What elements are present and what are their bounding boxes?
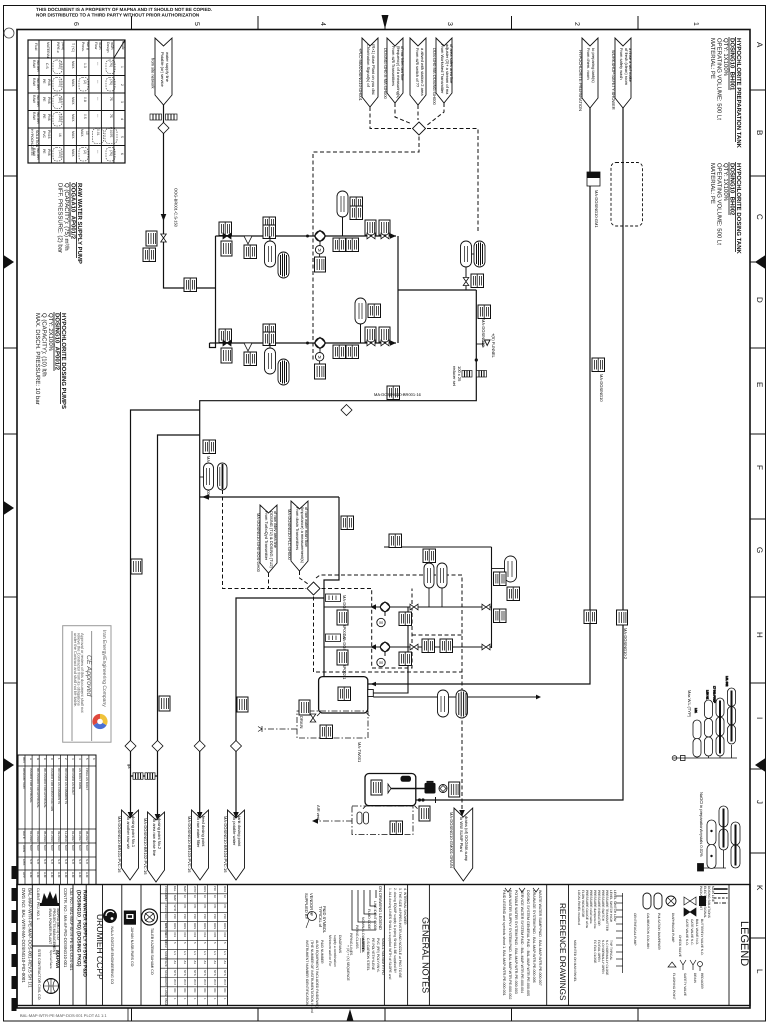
svg-text:6: 6 xyxy=(72,22,79,26)
svg-text:WATER: WATER xyxy=(36,112,40,124)
svg-text:M.R: M.R xyxy=(43,845,47,851)
svg-text:Press.: Press. xyxy=(81,42,85,52)
svg-text:CHK: CHK xyxy=(22,859,26,865)
svg-text:HYPOCHLORITE DOSING TANK: HYPOCHLORITE DOSING TANK xyxy=(735,163,742,255)
svg-text:+(X) FUNNEL: +(X) FUNNEL xyxy=(491,333,496,359)
svg-text:QTY: 2X100%: QTY: 2X100% xyxy=(47,313,54,352)
svg-text:PVC (PR) POLYVINYL: PVC (PR) POLYVINYL xyxy=(376,938,380,973)
svg-text:RAW: RAW xyxy=(32,78,36,87)
svg-text:UNIT: UNIT xyxy=(164,895,168,902)
svg-text:FINAL AS BUILT: FINAL AS BUILT xyxy=(85,768,89,790)
svg-text:DRAIN: DRAIN xyxy=(299,716,304,729)
svg-text:N.C NORMALLY CLOSE: N.C NORMALLY CLOSE xyxy=(605,940,609,975)
svg-text:GENERAL NOTES: GENERAL NOTES xyxy=(421,917,431,993)
svg-text:RE-ISSUED FOR APPROVAL: RE-ISSUED FOR APPROVAL xyxy=(36,768,40,808)
svg-text:IRAN POWER PLANT: IRAN POWER PLANT xyxy=(48,909,52,946)
svg-text:MAPNA (MD-1) CO: MAPNA (MD-1) CO xyxy=(56,909,60,940)
svg-text:PN16: PN16 xyxy=(47,130,51,139)
svg-text:5: 5 xyxy=(120,136,124,138)
svg-text:LEVEL SWITCH LOW: LEVEL SWITCH LOW xyxy=(613,890,617,921)
svg-text:REVISED AS COMMENTS: REVISED AS COMMENTS xyxy=(64,768,68,804)
svg-text:11.2016: 11.2016 xyxy=(64,831,68,842)
svg-text:CLIENT PRJ. NO. 1: CLIENT PRJ. NO. 1 xyxy=(36,888,40,920)
svg-text:2017: 2017 xyxy=(213,979,217,986)
svg-text:01.2016: 01.2016 xyxy=(29,831,33,842)
svg-text:LANG: LANG xyxy=(164,989,168,997)
svg-text:03.2017: 03.2017 xyxy=(78,831,82,842)
svg-text:PROJECTS MANAGEMENT: PROJECTS MANAGEMENT xyxy=(52,909,56,956)
svg-text:---: --- xyxy=(96,97,100,100)
svg-text:75: 75 xyxy=(109,114,113,118)
svg-text:ABBREV.: ABBREV. xyxy=(361,938,365,953)
svg-text:MAP: MAP xyxy=(183,886,187,892)
svg-text:MAX.: MAX. xyxy=(71,61,75,69)
svg-text:MATERIAL: PE: MATERIAL: PE xyxy=(709,163,716,204)
svg-text:---: --- xyxy=(96,80,100,83)
svg-text:Design: Design xyxy=(106,42,110,53)
svg-text:002: 002 xyxy=(183,933,187,938)
svg-text:WATER: WATER xyxy=(36,148,40,160)
svg-text:S.H: S.H xyxy=(50,859,54,864)
svg-text:URUMIEH CCPP: URUMIEH CCPP xyxy=(95,914,105,980)
svg-text:ON DRAWING LEGEND: ON DRAWING LEGEND xyxy=(378,886,383,930)
svg-text:under the Contract and shall n: under the Contract and shall not be liab… xyxy=(73,633,78,707)
svg-text:SCALE: SCALE xyxy=(164,970,168,979)
svg-text:A.M: A.M xyxy=(71,872,75,878)
svg-text:(150): (150) xyxy=(58,114,62,122)
svg-text:PE: PE xyxy=(193,905,197,909)
svg-text:Q (CAPACITY): (10) lt/h: Q (CAPACITY): (10) lt/h xyxy=(41,313,48,377)
svg-text:DIAPHRAGM PUMP: DIAPHRAGM PUMP xyxy=(671,913,675,942)
svg-text:PRESSURE relief valve: PRESSURE relief valve xyxy=(589,890,593,924)
svg-text:(mm): (mm) xyxy=(61,42,65,50)
svg-text:drains (of) OOGMA sump: drains (of) OOGMA sump xyxy=(464,816,469,862)
svg-text:HYPOCHLORITE-PREPARATION: HYPOCHLORITE-PREPARATION xyxy=(578,50,583,111)
svg-text:S.H: S.H xyxy=(29,859,33,864)
svg-text:S.H: S.H xyxy=(64,859,68,864)
svg-text:M.R: M.R xyxy=(71,845,75,851)
svg-text:TALEB KAZEMI SAHAMI CO: TALEB KAZEMI SAHAMI CO xyxy=(150,928,154,975)
svg-text:S.H: S.H xyxy=(57,859,61,864)
svg-text:dosing point No.2: dosing point No.2 xyxy=(157,818,162,850)
svg-text:Flow: Flow xyxy=(94,42,98,50)
svg-text:PRESSURE SWITCH: PRESSURE SWITCH xyxy=(601,890,605,922)
svg-text:4. INTERNAL SHOWER: 4. INTERNAL SHOWER xyxy=(403,888,407,925)
svg-text:Iran Energy/Engineering Compan: Iran Energy/Engineering Company xyxy=(101,630,107,707)
svg-text:RAW: RAW xyxy=(32,95,36,104)
svg-text:1/1: 1/1 xyxy=(173,951,177,955)
svg-text:NaOCl in preparation/crystals: NaOCl in preparation/crystals 0.01% xyxy=(699,792,704,857)
svg-text:PN6: PN6 xyxy=(47,97,51,104)
svg-text:LSH 01: LSH 01 xyxy=(706,690,710,700)
svg-text:MA-DOSING10-BR103-PVC-16: MA-DOSING10-BR103-PVC-16 xyxy=(187,816,192,873)
svg-text:P&ID SYMBOL: P&ID SYMBOL xyxy=(322,906,327,934)
svg-text:FLUID CODE: FLUID CODE xyxy=(367,909,371,930)
svg-text:07.2016: 07.2016 xyxy=(50,831,54,842)
svg-text:T (°C): T (°C) xyxy=(71,43,75,52)
svg-text:GATE VALVE N.C.: GATE VALVE N.C. xyxy=(690,919,694,946)
svg-text:TYP TYPICAL: TYP TYPICAL xyxy=(609,940,613,960)
svg-text:ISSUED FOR CONSTRUCTION: ISSUED FOR CONSTRUCTION xyxy=(50,768,54,811)
svg-text:APP: APP xyxy=(22,872,26,878)
svg-text:BAL-MAP-WTR-PE-MAP-DOS-001-REV: BAL-MAP-WTR-PE-MAP-DOS-001-REV.5 SH 1/1 xyxy=(28,888,33,988)
svg-text:5: 5 xyxy=(193,22,200,26)
svg-text:of raw i/dev area line: of raw i/dev area line xyxy=(273,511,278,549)
svg-text:SERVICE WATER SYSTEM P&ID - BA: SERVICE WATER SYSTEM P&ID - BAL-MAP-WTR-… xyxy=(520,890,524,993)
svg-text:DATE: DATE xyxy=(22,831,26,839)
svg-text:SAFETY VALVE: SAFETY VALVE xyxy=(683,973,687,996)
svg-text:MAPNA: MAPNA xyxy=(54,950,60,969)
svg-text:EN: EN xyxy=(203,989,207,993)
svg-text:75: 75 xyxy=(109,97,113,101)
svg-text:SUPPLIED BY: SUPPLIED BY xyxy=(304,893,309,920)
svg-text:NTS: NTS xyxy=(193,970,197,976)
svg-text:16: 16 xyxy=(58,133,62,137)
svg-text:of ma. inlet raw line: of ma. inlet raw line xyxy=(400,46,405,81)
svg-text:DIAGRAMS: DIAGRAMS xyxy=(338,935,342,954)
svg-text:PID: PID xyxy=(213,914,217,919)
svg-text:WTR: WTR xyxy=(193,886,197,892)
svg-text:DESCRIPTION: DESCRIPTION xyxy=(22,768,26,789)
svg-text:A: A xyxy=(755,42,764,48)
svg-text:2017: 2017 xyxy=(183,979,187,986)
svg-text:QTY: 1X100%: QTY: 1X100% xyxy=(722,163,729,202)
svg-text:0.5: 0.5 xyxy=(83,114,87,119)
svg-text:Chlorination Signal(s) of: Chlorination Signal(s) of xyxy=(366,44,371,88)
svg-text:LS1: LS1 xyxy=(694,708,698,713)
svg-text:2. dosing EQUIP supply & pipin: 2. dosing EQUIP supply & piping SHALL BE… xyxy=(393,888,397,974)
svg-text:m3/h: m3/h xyxy=(98,42,102,50)
svg-text:1.3: 1.3 xyxy=(83,63,87,68)
svg-text:to preparing tank(s): to preparing tank(s) xyxy=(591,48,596,83)
svg-text:MA-DOSING10: MA-DOSING10 xyxy=(481,319,486,347)
svg-text:004: 004 xyxy=(203,933,207,938)
svg-text:DOS: DOS xyxy=(183,923,187,929)
svg-text:1/1: 1/1 xyxy=(203,951,207,955)
svg-text:To area raw dose line: To area raw dose line xyxy=(152,818,157,857)
svg-text:---: --- xyxy=(96,114,100,117)
svg-text:Special Saze: Special Saze xyxy=(49,950,53,969)
svg-text:2017: 2017 xyxy=(193,979,197,986)
svg-text:MA-TW001: MA-TW001 xyxy=(357,742,362,763)
svg-text:C&I. NO.: BAL-MAP-WTR-PE-001-D: C&I. NO.: BAL-MAP-WTR-PE-001-DOS-001 xyxy=(69,888,74,971)
svg-text:of raw water main flow: of raw water main flow xyxy=(304,507,309,547)
svg-text:---: --- xyxy=(96,150,100,153)
svg-text:MATERIAL: MATERIAL xyxy=(46,42,50,59)
svg-text:reducer set: reducer set xyxy=(452,366,457,387)
svg-text:A.M: A.M xyxy=(64,872,68,878)
svg-text:MA-DOSING10-GM1: MA-DOSING10-GM1 xyxy=(594,190,599,228)
svg-text:1/1: 1/1 xyxy=(183,951,187,955)
svg-text:of area sales area line: of area sales area line xyxy=(449,44,454,84)
svg-text:M.R: M.R xyxy=(50,845,54,851)
svg-text:10: 10 xyxy=(183,895,187,899)
svg-text:DRAIN: DRAIN xyxy=(693,973,697,984)
svg-text:MAP: MAP xyxy=(173,895,177,901)
svg-text:From dosin Transmitters: From dosin Transmitters xyxy=(295,507,300,550)
svg-text:SIZE: SIZE xyxy=(164,961,168,967)
svg-text:A.M: A.M xyxy=(57,872,61,878)
svg-text:L: L xyxy=(755,969,764,974)
svg-text:MAX.: MAX. xyxy=(71,149,75,157)
svg-text:ga: ga xyxy=(127,764,132,769)
svg-text:To potable water: To potable water xyxy=(232,816,237,846)
svg-text:(100): (100) xyxy=(58,79,62,87)
svg-text:m3/h: m3/h xyxy=(110,42,114,50)
svg-text:MA-DOSING10-BR104-PVC-16: MA-DOSING10-BR104-PVC-16 xyxy=(223,816,228,873)
svg-text:from site network: from site network xyxy=(151,58,156,88)
svg-text:tank dosing point: tank dosing point xyxy=(237,816,242,847)
svg-text:1/1: 1/1 xyxy=(223,951,227,955)
svg-text:LEGEND: LEGEND xyxy=(738,921,750,966)
svg-text:1/1: 1/1 xyxy=(193,951,197,955)
svg-text:BUTTERFLY VALVE N.O.: BUTTERFLY VALVE N.O. xyxy=(700,919,704,956)
svg-text:A.M: A.M xyxy=(50,872,54,878)
svg-text:RE-ISSUED FOR APPROVAL: RE-ISSUED FOR APPROVAL xyxy=(43,768,47,808)
svg-text:RAW: RAW xyxy=(32,60,36,69)
svg-text:DOS: DOS xyxy=(223,923,227,929)
svg-text:DOSING SYSTEM GENERAL P&ID - B: DOSING SYSTEM GENERAL P&ID - BAL-MAP-WTR… xyxy=(526,890,530,996)
svg-text:BAL: BAL xyxy=(173,886,177,892)
svg-text:HYPOCHLORITE PREPARATION TANK: HYPOCHLORITE PREPARATION TANK xyxy=(735,38,742,149)
svg-text:4: 4 xyxy=(120,118,124,120)
svg-text:EN: EN xyxy=(173,989,177,993)
svg-text:1: 1 xyxy=(120,66,124,68)
svg-text:C: C xyxy=(755,214,764,220)
svg-text:S.H: S.H xyxy=(43,859,47,864)
svg-text:DOS: DOS xyxy=(203,886,207,892)
svg-text:4: 4 xyxy=(319,22,326,26)
svg-text:J: J xyxy=(755,800,764,804)
svg-text:2: 2 xyxy=(573,22,580,26)
svg-text:From st/6 switch of ??: From st/6 switch of ?? xyxy=(415,48,420,88)
svg-text:NTS: NTS xyxy=(203,970,207,976)
svg-text:(DOSING10_PID) (DOSING PKG): (DOSING10_PID) (DOSING PKG) xyxy=(76,890,82,967)
svg-text:DOS-GH0-MA-DOSING-GH000: DOS-GH0-MA-DOSING-GH000 xyxy=(432,48,437,105)
svg-text:S.H: S.H xyxy=(78,859,82,864)
svg-text:I: I xyxy=(755,717,764,719)
svg-text:OOGAA10_AP001/2: OOGAA10_AP001/2 xyxy=(70,183,77,240)
svg-text:A: A xyxy=(29,758,33,760)
svg-text:dosing point No.1: dosing point No.1 xyxy=(131,816,136,848)
svg-text:MATERIAL: PE: MATERIAL: PE xyxy=(709,38,716,79)
svg-text:1. ALL dosing LINES SHALL a su: 1. ALL dosing LINES SHALL a supplied WIT… xyxy=(388,888,392,979)
svg-text:NTS: NTS xyxy=(173,970,177,976)
svg-text:MA-DOSING10-GM001-DRAIN: MA-DOSING10-GM001-DRAIN xyxy=(449,812,454,868)
svg-text:OPERATING VOLUME: 500 Lt: OPERATING VOLUME: 500 Lt xyxy=(716,163,723,245)
svg-text:G: G xyxy=(755,547,764,553)
svg-text:FO FAIL OPEN: FO FAIL OPEN xyxy=(597,940,601,962)
svg-text:DRAINAGE SYSTEM P&ID - BAL-MAP: DRAINAGE SYSTEM P&ID - BAL-MAP-WTR-PE-00… xyxy=(532,890,536,983)
svg-text:3. THE SIZE of PIPES INSTR AND: 3. THE SIZE of PIPES INSTR AND NOZZLE at… xyxy=(398,888,402,979)
svg-text:NTS: NTS xyxy=(183,970,187,976)
svg-text:VENDOR pt: VENDOR pt xyxy=(309,893,314,915)
svg-text:PE POLYETHYLENE: PE POLYETHYLENE xyxy=(371,938,375,971)
svg-text:feed dosing point: feed dosing point xyxy=(201,816,206,847)
svg-text:A.M: A.M xyxy=(85,872,89,878)
svg-text:To WW SUMP Plant: To WW SUMP Plant xyxy=(459,816,464,853)
svg-text:PE: PE xyxy=(183,905,187,909)
svg-text:From chem. room: From chem. room xyxy=(586,48,591,80)
svg-text:A1: A1 xyxy=(203,961,207,965)
svg-text:MA-DOSING10-GH0-DOS-GH00: MA-DOSING10-GH0-DOS-GH00 xyxy=(256,513,261,573)
svg-text:REV: REV xyxy=(164,942,168,948)
svg-text:B: B xyxy=(755,130,764,135)
svg-text:6: 6 xyxy=(120,153,124,155)
svg-text:SOLUTION: SOLUTION xyxy=(35,130,39,148)
svg-text:A1: A1 xyxy=(213,961,217,965)
svg-text:+PLC-MA/DOSING10-GH001: +PLC-MA/DOSING10-GH001 xyxy=(358,48,363,102)
svg-text:NTS: NTS xyxy=(223,970,227,976)
svg-text:From safety wash: From safety wash xyxy=(619,48,624,80)
svg-text:REVISED AS BUILT: REVISED AS BUILT xyxy=(71,768,75,795)
svg-text:PIPING CLASS: PIPING CLASS xyxy=(355,925,359,949)
svg-text:RAW WATER SUPPLY PUMP: RAW WATER SUPPLY PUMP xyxy=(76,183,83,264)
svg-text:WATER: WATER xyxy=(36,95,40,107)
svg-text:A1: A1 xyxy=(193,961,197,965)
svg-text:NTS: NTS xyxy=(213,970,217,976)
svg-text:DOSING10_BH002: DOSING10_BH002 xyxy=(729,163,736,216)
svg-text:Potable (or) service: Potable (or) service xyxy=(160,52,165,87)
svg-text:PAGE: PAGE xyxy=(164,998,168,1006)
svg-text:DOSING-GH0-A-MA-GH000: DOSING-GH0-A-MA-GH000 xyxy=(383,48,388,99)
svg-text:DWG NO: BAL-WTR-MA-DOSING10-PI: DWG NO: BAL-WTR-MA-DOSING10-PID-0001 xyxy=(21,888,26,983)
svg-text:05.2016: 05.2016 xyxy=(43,831,47,842)
svg-text:H: H xyxy=(755,632,764,638)
svg-text:MA-DOSING10-2: MA-DOSING10-2 xyxy=(623,628,628,660)
svg-text:PVC: PVC xyxy=(42,131,46,139)
svg-text:PID: PID xyxy=(173,914,177,919)
svg-text:(100): (100) xyxy=(58,150,62,158)
svg-text:S.H: S.H xyxy=(85,859,89,864)
svg-text:DOS: DOS xyxy=(173,923,177,929)
svg-text:MA-DOSING10-PLC-GH000: MA-DOSING10-PLC-GH000 xyxy=(287,509,292,560)
svg-text:C.S: C.S xyxy=(45,63,49,69)
svg-text:DOSING10_BH001: DOSING10_BH001 xyxy=(729,38,736,91)
svg-text:(80): (80) xyxy=(58,97,62,103)
svg-text:10: 10 xyxy=(213,895,217,899)
svg-text:GATE VALVE N.O.: GATE VALVE N.O. xyxy=(685,919,689,946)
svg-text:WTR: WTR xyxy=(173,905,177,911)
svg-text:From st/6 Transmitters: From st/6 Transmitters xyxy=(391,46,396,86)
svg-text:S.H: S.H xyxy=(71,859,75,864)
svg-text:05.2017: 05.2017 xyxy=(85,831,89,842)
svg-text:MA-DOSING10-BR001-16: MA-DOSING10-BR001-16 xyxy=(374,392,422,397)
svg-text:NOR DISTRIBUTED TO A THIRD PAR: NOR DISTRIBUTED TO A THIRD PARTY WITHOUT… xyxy=(36,13,200,18)
svg-text:INSTRUMENT NUMBER IDENTIFICATI: INSTRUMENT NUMBER IDENTIFICATION xyxy=(305,940,309,1006)
svg-text:A.M: A.M xyxy=(29,872,33,878)
svg-text:3: 3 xyxy=(446,22,453,26)
svg-text:P&ID LEGEND and symbols sheet: P&ID LEGEND and symbols sheet 1. BAL-MAP… xyxy=(502,890,506,996)
svg-text:HYPOCHLORITE DOSING PUMPS: HYPOCHLORITE DOSING PUMPS xyxy=(60,313,67,409)
svg-text:ALSO EQUIPMENT INCLUDED P&ID/D: ALSO EQUIPMENT INCLUDED P&ID/DWG) xyxy=(315,940,319,1008)
svg-text:M.R: M.R xyxy=(85,845,89,851)
svg-text:PE: PE xyxy=(213,905,217,909)
svg-text:DOS: DOS xyxy=(203,923,207,929)
svg-text:SHEET: SHEET xyxy=(164,951,168,961)
svg-text:PE: PE xyxy=(42,79,46,84)
svg-text:(75): (75) xyxy=(109,61,113,67)
svg-text:BALL VALVE N.O.: BALL VALVE N.O. xyxy=(695,919,699,945)
svg-text:AS BUILT DWG: AS BUILT DWG xyxy=(78,768,82,790)
svg-text:005: 005 xyxy=(213,933,217,938)
svg-text:A1: A1 xyxy=(223,961,227,965)
svg-text:03.2016: 03.2016 xyxy=(36,831,40,842)
svg-text:OOG-BR001-C.S-150: OOG-BR001-C.S-150 xyxy=(174,188,179,228)
svg-text:PID: PID xyxy=(223,914,227,919)
svg-text:WASTE WATER SUMP P&ID - BAL-MA: WASTE WATER SUMP P&ID - BAL-MAP-WTR-PE-0… xyxy=(538,890,542,986)
svg-text:CE Approved: CE Approved xyxy=(85,655,93,697)
svg-text:(R×1) dose Plant on you dist: (R×1) dose Plant on you dist xyxy=(371,44,376,95)
svg-text:REV: REV xyxy=(22,757,26,763)
svg-text:BAL-MAP-WTR-PE-MAP-DOS-001 PL: BAL-MAP-WTR-PE-MAP-DOS-001 PLOT A1 1:1 xyxy=(20,1013,107,1018)
svg-text:DOS: DOS xyxy=(193,923,197,929)
svg-text:From TurboQyd Transmitter: From TurboQyd Transmitter xyxy=(264,511,269,561)
svg-text:PID: PID xyxy=(193,914,197,919)
svg-text:CHECK VALVE: CHECK VALVE xyxy=(678,935,682,957)
svg-text:003: 003 xyxy=(193,933,197,938)
svg-text:(75): (75) xyxy=(109,79,113,85)
svg-text:DOSING10_AP001/2: DOSING10_AP001/2 xyxy=(54,313,61,371)
svg-text:WATER: WATER xyxy=(36,60,40,72)
svg-text:M.R: M.R xyxy=(57,845,61,851)
svg-text:(150): (150) xyxy=(58,61,62,69)
svg-text:water supply line: water supply line xyxy=(165,52,170,83)
svg-text:PIPE ⌀: PIPE ⌀ xyxy=(56,42,60,53)
svg-text:2017: 2017 xyxy=(203,979,207,986)
svg-text:EN: EN xyxy=(213,989,217,993)
svg-text:THIS DOCUMENT IS A PROPERTY OF: THIS DOCUMENT IS A PROPERTY OF MAPNA AND… xyxy=(36,7,212,12)
svg-text:REVISED AS COMMENTS: REVISED AS COMMENTS xyxy=(57,768,61,804)
svg-text:Fluid: Fluid xyxy=(34,43,38,50)
svg-text:REDUCER: REDUCER xyxy=(700,973,704,989)
svg-text:006: 006 xyxy=(223,933,227,938)
svg-text:A1: A1 xyxy=(173,961,177,965)
svg-text:1/1: 1/1 xyxy=(213,951,217,955)
svg-text:a alived with station-2 area: a alived with station-2 area xyxy=(420,48,425,96)
svg-text:0.8: 0.8 xyxy=(83,97,87,102)
svg-text:+ (X) + (X) SEQUENCE: + (X) + (X) SEQUENCE xyxy=(346,945,350,982)
svg-text:CENTRIFUGAL PUMP: CENTRIFUGAL PUMP xyxy=(633,913,637,945)
svg-text:01.2017: 01.2017 xyxy=(71,831,75,842)
svg-text:3: 3 xyxy=(120,101,124,103)
svg-text:PN6: PN6 xyxy=(47,149,51,156)
svg-text:PE: PE xyxy=(42,149,46,154)
svg-text:10: 10 xyxy=(223,895,227,899)
svg-text:FC FAIL CLOSE: FC FAIL CLOSE xyxy=(593,940,597,963)
svg-text:PE: PE xyxy=(203,905,207,909)
svg-text:SITE CONTRACTOR CIVIL CO.: SITE CONTRACTOR CIVIL CO. xyxy=(37,949,41,1001)
svg-text:B: B xyxy=(36,758,40,760)
svg-text:A.M: A.M xyxy=(78,872,82,878)
svg-text:PRESSURE dampener line: PRESSURE dampener line xyxy=(593,890,597,929)
svg-text:AIR vent: AIR vent xyxy=(316,805,321,821)
svg-text:N.O NORMALLY OPEN: N.O NORMALLY OPEN xyxy=(601,940,605,974)
svg-text:PULSATION DAMPENER: PULSATION DAMPENER xyxy=(657,913,661,950)
svg-text:D: D xyxy=(755,297,764,303)
svg-text:bar g: bar g xyxy=(86,42,90,50)
svg-text:From Workshed Transmitter: From Workshed Transmitter xyxy=(440,44,445,94)
svg-text:LSL 002: LSL 002 xyxy=(725,676,729,687)
svg-text:M.R: M.R xyxy=(78,845,82,851)
svg-text:PE: PE xyxy=(223,905,227,909)
svg-text:MA-DOSING10: MA-DOSING10 xyxy=(599,374,604,402)
svg-text:WATER: WATER xyxy=(36,78,40,90)
svg-text:0.01: 0.01 xyxy=(96,129,100,136)
svg-text:2017: 2017 xyxy=(173,979,177,986)
svg-text:MA-DOSING10-BR101-PVC-16: MA-DOSING10-BR101-PVC-16 xyxy=(117,816,122,873)
svg-text:Minimum wall on For: Minimum wall on For xyxy=(328,935,332,967)
